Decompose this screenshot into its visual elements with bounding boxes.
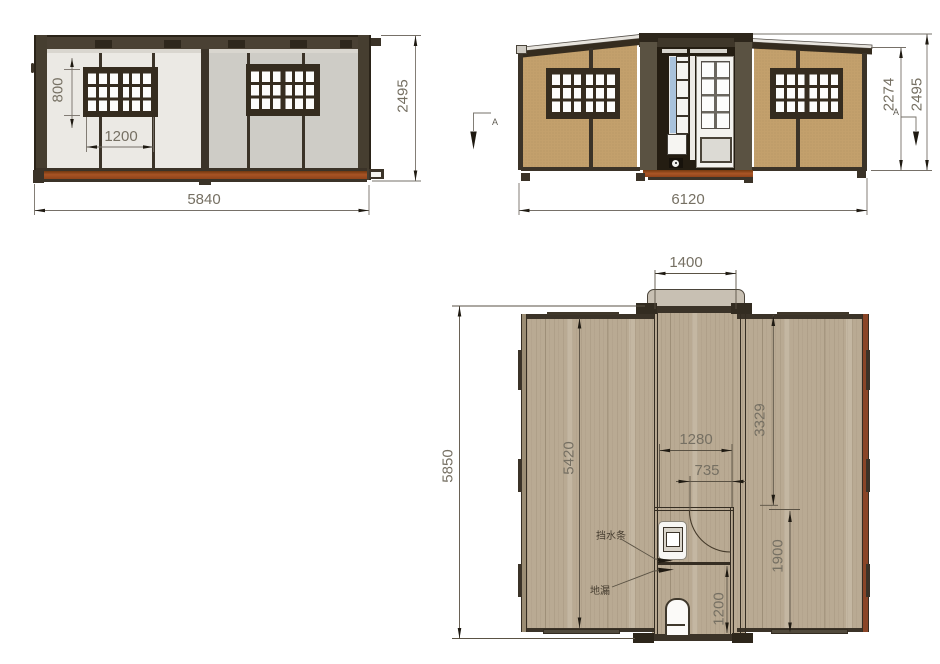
svg-text:5850: 5850 bbox=[440, 449, 457, 482]
svg-text:地漏: 地漏 bbox=[590, 584, 610, 597]
svg-text:A: A bbox=[492, 117, 498, 127]
svg-text:1200: 1200 bbox=[711, 592, 728, 625]
svg-text:3329: 3329 bbox=[752, 403, 769, 436]
svg-text:6120: 6120 bbox=[671, 191, 704, 208]
svg-text:2495: 2495 bbox=[395, 79, 412, 112]
svg-text:5420: 5420 bbox=[561, 441, 578, 474]
svg-text:800: 800 bbox=[50, 77, 67, 102]
svg-text:1900: 1900 bbox=[770, 539, 787, 572]
svg-text:挡水条: 挡水条 bbox=[596, 529, 626, 542]
svg-text:1280: 1280 bbox=[679, 431, 712, 448]
svg-text:5840: 5840 bbox=[187, 191, 220, 208]
svg-text:1200: 1200 bbox=[104, 128, 137, 145]
svg-text:735: 735 bbox=[694, 462, 719, 479]
svg-text:2495: 2495 bbox=[909, 78, 926, 111]
svg-text:A: A bbox=[893, 107, 899, 117]
svg-text:1400: 1400 bbox=[669, 254, 702, 271]
